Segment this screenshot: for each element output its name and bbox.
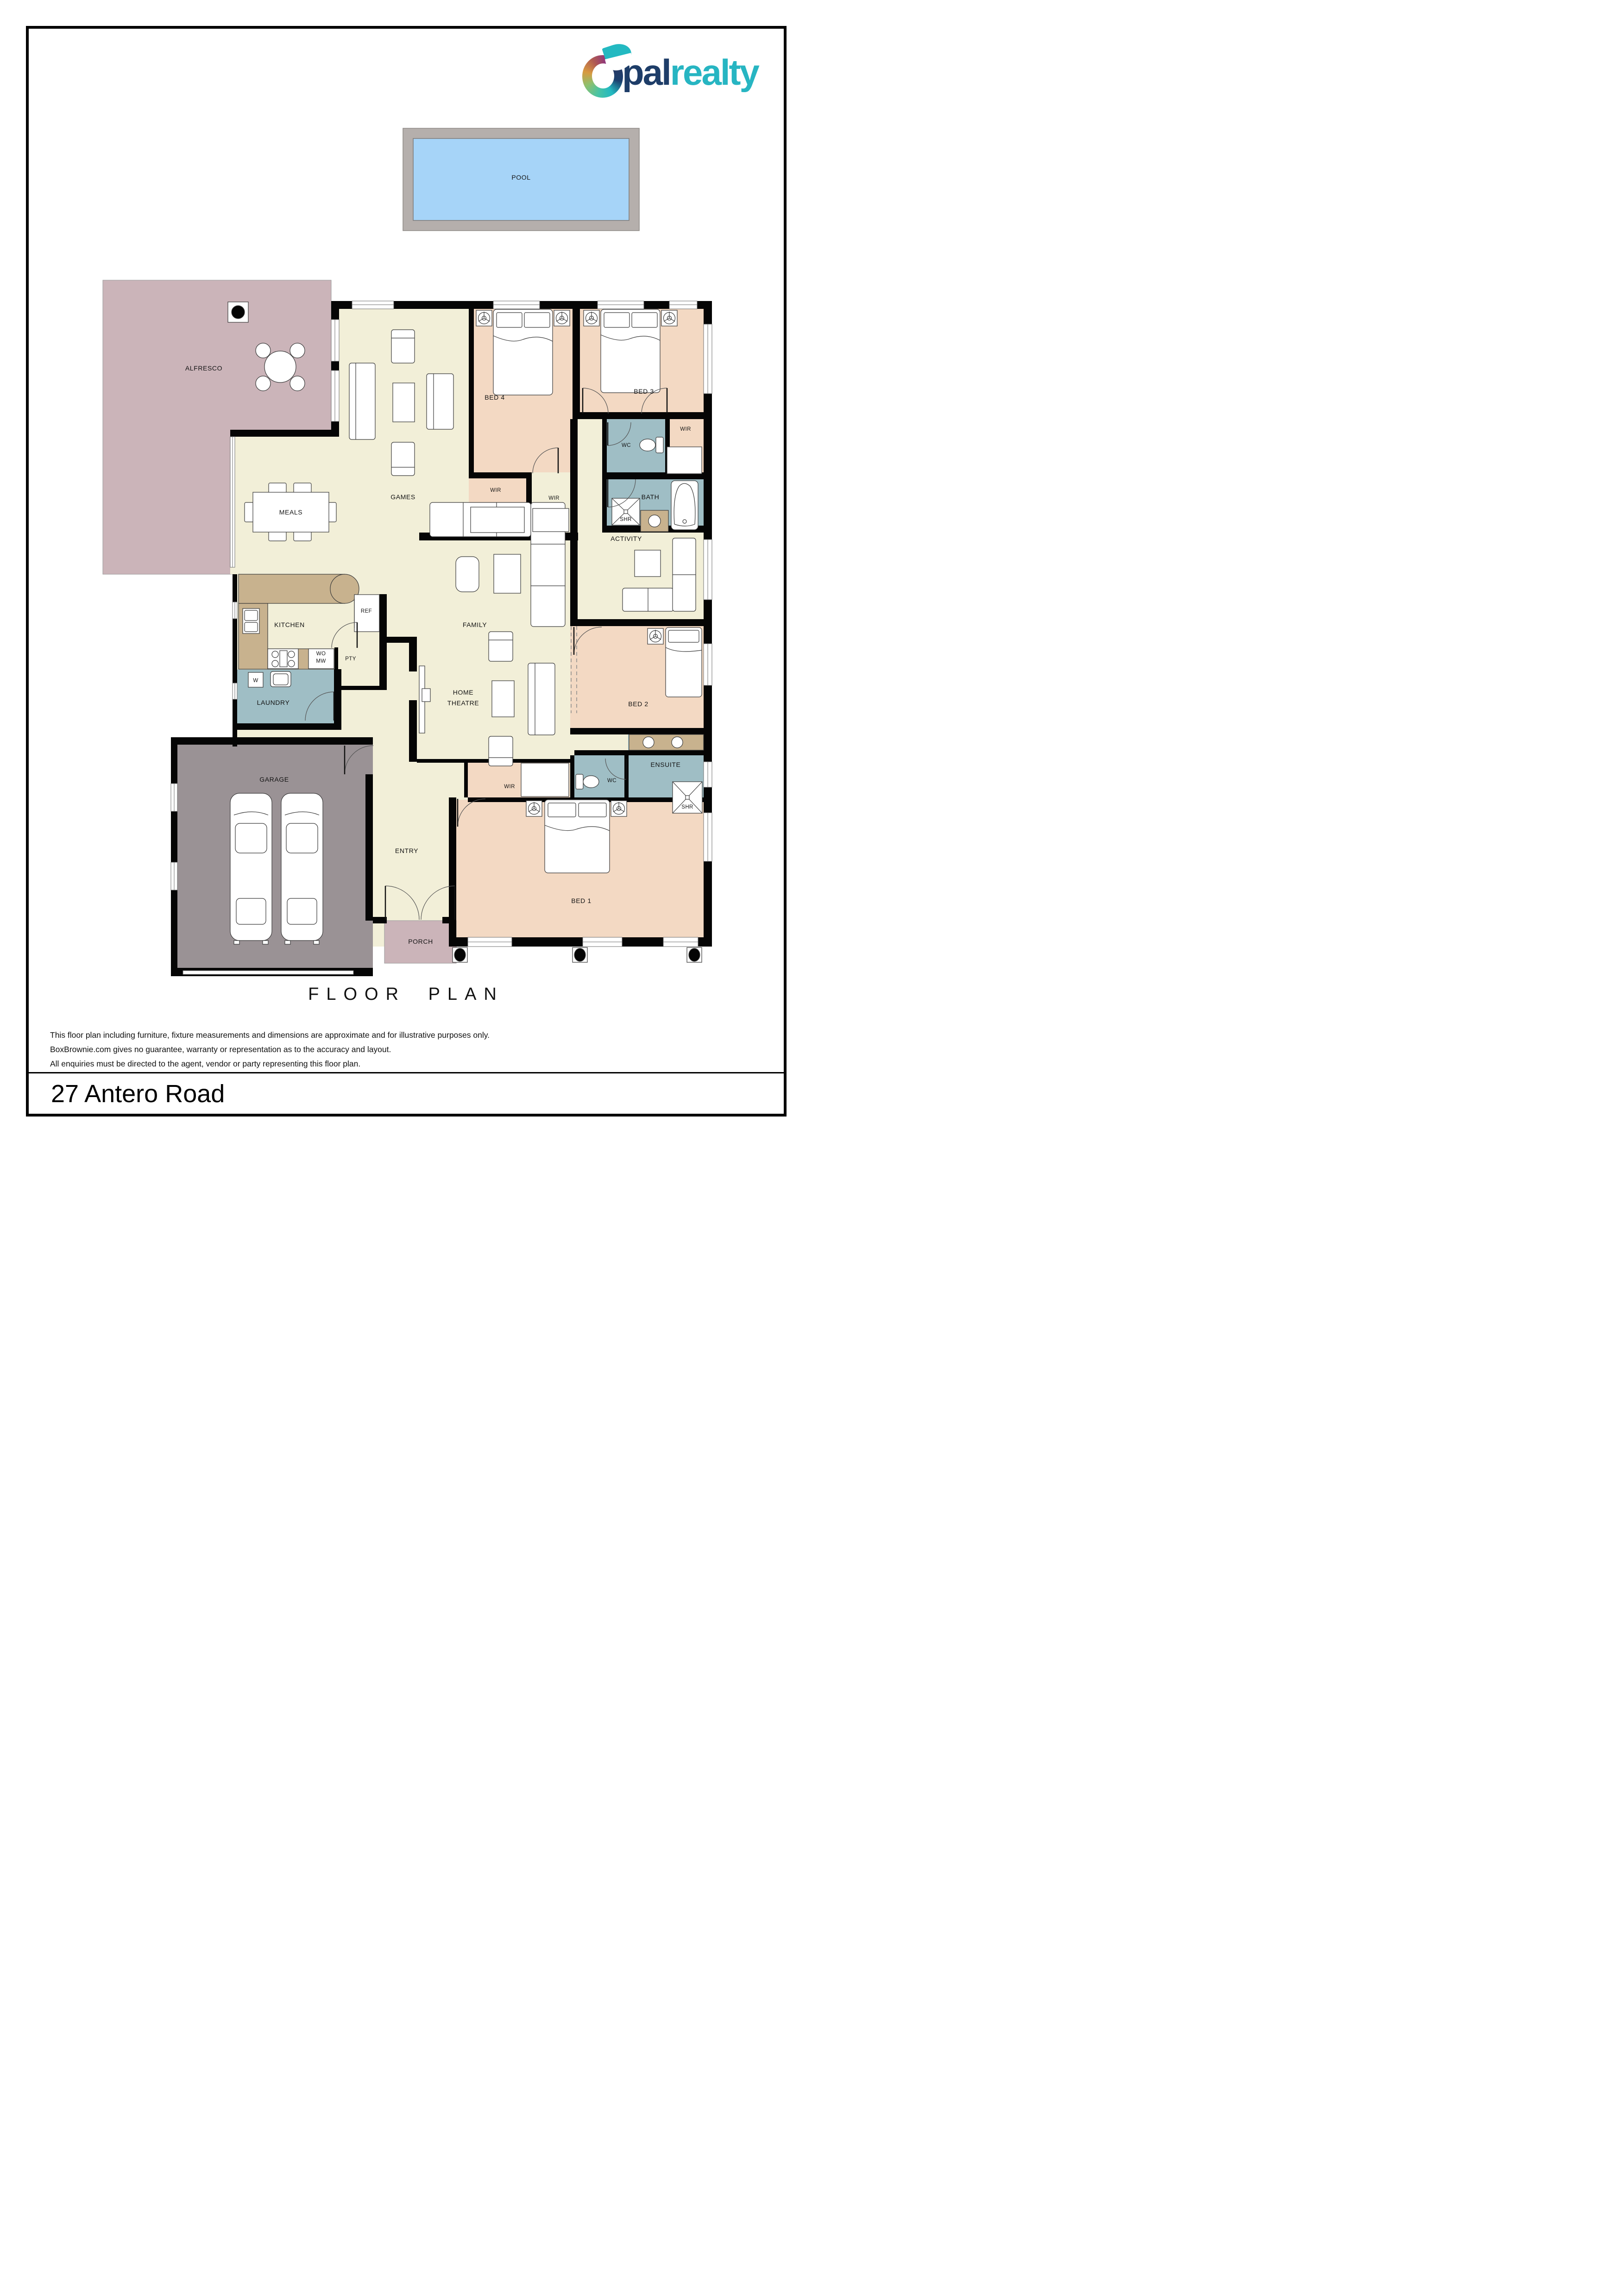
- room-label-home-theatre-line1: HOME: [453, 689, 473, 696]
- room-label-wc-bed1: WC: [607, 778, 617, 784]
- bed1-bed: [545, 800, 610, 873]
- room-label-meals: MEALS: [279, 508, 302, 516]
- room-label-activity: ACTIVITY: [611, 535, 642, 542]
- wc-bed1-toilet: [576, 774, 599, 789]
- room-label-washer: W: [253, 678, 258, 684]
- car-1: [230, 793, 272, 944]
- alfresco-post: [228, 302, 248, 322]
- page: palrealty: [0, 0, 812, 1148]
- ceiling-fan-icon: [648, 628, 663, 644]
- room-label-games: GAMES: [390, 493, 415, 501]
- room-label-alfresco: ALFRESCO: [185, 364, 222, 372]
- room-label-shr-ensuite: SHR: [681, 804, 693, 810]
- room-label-wo-line2: MW: [316, 659, 326, 664]
- room-label-pool: POOL: [511, 174, 530, 181]
- room-label-wir-bed1: WIR: [504, 784, 515, 790]
- floor-plan-title: FLOOR PLAN: [0, 985, 812, 1004]
- room-label-wc-top: WC: [622, 443, 631, 448]
- room-label-home-theatre-line2: THEATRE: [447, 699, 479, 707]
- car-2: [281, 793, 323, 944]
- ceiling-fan-icon: [554, 310, 570, 326]
- bed4-bed: [493, 309, 553, 395]
- room-label-bed3: BED 3: [634, 388, 654, 395]
- room-label-bed4: BED 4: [485, 394, 504, 401]
- room-label-garage: GARAGE: [259, 776, 289, 783]
- bed3-bed: [601, 309, 660, 393]
- room-label-entry: ENTRY: [395, 847, 418, 854]
- bed2-bed: [666, 627, 702, 697]
- room-label-wir-hall: WIR: [548, 496, 560, 501]
- room-label-family: FAMILY: [463, 621, 487, 628]
- floor-plan-canvas: POOLALFRESCOGAMESMEALSBED 4BED 3WIRWIRWC…: [0, 0, 812, 1148]
- room-label-bath: BATH: [642, 493, 660, 501]
- room-label-wo-line1: WO: [316, 651, 326, 657]
- room-label-wir-bed4: WIR: [490, 488, 501, 493]
- disclaimer: This floor plan including furniture, fix…: [50, 1028, 652, 1071]
- disclaimer-line-1: This floor plan including furniture, fix…: [50, 1028, 652, 1042]
- ceiling-fan-icon: [526, 801, 542, 816]
- address-text: 27 Antero Road: [29, 1079, 225, 1108]
- room-label-bed1: BED 1: [571, 897, 591, 904]
- ceiling-fan-icon: [476, 310, 492, 326]
- room-label-shr-bath: SHR: [620, 517, 631, 522]
- room-label-porch: PORCH: [408, 938, 433, 945]
- room-label-pty: PTY: [345, 656, 356, 662]
- ceiling-fan-icon: [661, 310, 677, 326]
- disclaimer-line-2: BoxBrownie.com gives no guarantee, warra…: [50, 1042, 652, 1057]
- address-bar: 27 Antero Road: [26, 1072, 787, 1117]
- posts: [453, 947, 702, 962]
- ceiling-fan-icon: [584, 310, 599, 326]
- room-label-kitchen: KITCHEN: [274, 621, 305, 628]
- room-label-bed2: BED 2: [628, 700, 648, 708]
- ceiling-fan-icon: [611, 801, 627, 816]
- room-label-wir-bed3: WIR: [680, 427, 691, 432]
- disclaimer-line-3: All enquiries must be directed to the ag…: [50, 1057, 652, 1071]
- room-label-ensuite: ENSUITE: [651, 761, 681, 768]
- room-label-ref: REF: [361, 609, 372, 614]
- room-label-laundry: LAUNDRY: [257, 699, 290, 706]
